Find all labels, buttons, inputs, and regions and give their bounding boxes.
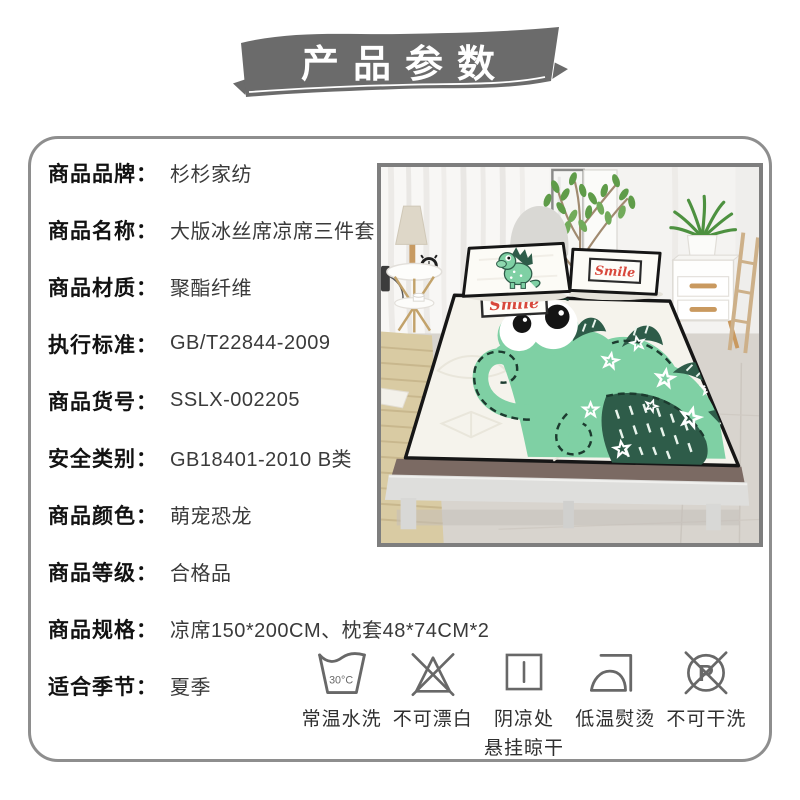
spec-label: 适合季节 xyxy=(48,671,136,701)
pillow-right: Smile xyxy=(569,249,663,300)
pillow-left xyxy=(463,243,570,302)
spec-colon: ： xyxy=(136,557,157,587)
no-bleach-icon xyxy=(406,646,460,698)
cup xyxy=(413,293,424,301)
spec-colon: ： xyxy=(136,215,157,245)
spec-value: 凉席150*200CM、枕套48*74CM*2 xyxy=(170,614,489,643)
care-item-no-bleach: 不可漂白 xyxy=(387,646,478,760)
spec-label: 商品货号 xyxy=(48,386,136,416)
spec-label: 执行标准 xyxy=(48,329,136,359)
care-label: 不可漂白 xyxy=(393,704,473,731)
spec-colon: ： xyxy=(136,386,157,416)
spec-value: 聚酯纤维 xyxy=(170,272,252,301)
pillow-smile-text: Smile xyxy=(594,263,635,280)
spec-colon: ： xyxy=(136,158,157,188)
care-item-wash: 30°C 常温水洗 xyxy=(296,646,387,760)
care-label: 低温熨烫 xyxy=(575,704,655,731)
spec-label: 安全类别 xyxy=(48,443,136,473)
svg-text:30°C: 30°C xyxy=(329,675,353,687)
product-parameter-sheet: 产品参数 商品品牌： 杉杉家纺 商品名称： 大版冰丝席凉席三件套 商品材质： 聚… xyxy=(0,0,800,800)
care-item-no-dry-clean: P 不可干洗 xyxy=(661,646,752,760)
spec-colon: ： xyxy=(136,671,157,701)
banner-title: 产品参数 xyxy=(301,44,509,86)
care-label: 阴凉处 xyxy=(494,704,554,731)
spec-value: 合格品 xyxy=(170,557,232,586)
spec-value: GB/T22844-2009 xyxy=(170,332,330,355)
spec-label: 商品材质 xyxy=(48,272,136,302)
care-label: 常温水洗 xyxy=(302,704,382,731)
care-label: 不可干洗 xyxy=(666,704,746,731)
spec-value: 夏季 xyxy=(170,671,211,700)
care-instructions: 30°C 常温水洗 不可漂白 阴凉处 悬挂晾干 xyxy=(296,646,752,760)
low-temp-iron-icon xyxy=(587,646,643,698)
ribbon-tail-right xyxy=(551,61,570,81)
shade-hang-dry-icon xyxy=(498,646,550,698)
spec-colon: ： xyxy=(136,614,157,644)
no-dry-clean-icon: P xyxy=(679,646,733,698)
spec-colon: ： xyxy=(136,272,157,302)
spec-label: 商品等级 xyxy=(48,557,136,587)
spec-value: 萌宠恐龙 xyxy=(170,500,252,529)
spec-label: 商品品牌 xyxy=(48,158,136,188)
product-photo: Smile xyxy=(377,163,763,547)
spec-colon: ： xyxy=(136,329,157,359)
pillow-smile-label: Smile xyxy=(589,259,641,283)
ribbon-banner-graphic: 产品参数 xyxy=(229,22,571,106)
spec-value: 大版冰丝席凉席三件套 xyxy=(170,215,375,244)
spec-label: 商品名称 xyxy=(48,215,136,245)
care-label-line2: 悬挂晾干 xyxy=(484,733,564,760)
care-item-iron: 低温熨烫 xyxy=(570,646,661,760)
spec-label: 商品规格 xyxy=(48,614,136,644)
spec-value: GB18401-2010 B类 xyxy=(170,443,352,472)
ribbon-banner: 产品参数 xyxy=(229,22,571,106)
spec-row-grade: 商品等级： 合格品 xyxy=(48,543,448,600)
wash-basin-30c-icon: 30°C xyxy=(313,646,371,698)
care-item-shade-dry: 阴凉处 悬挂晾干 xyxy=(478,646,569,760)
spec-value: 杉杉家纺 xyxy=(170,158,252,187)
bedroom-scene: Smile xyxy=(381,167,759,543)
spec-value: SSLX-002205 xyxy=(170,389,300,412)
spec-colon: ： xyxy=(136,443,157,473)
spec-label: 商品颜色 xyxy=(48,500,136,530)
spec-colon: ： xyxy=(136,500,157,530)
bed-frame xyxy=(385,459,749,530)
